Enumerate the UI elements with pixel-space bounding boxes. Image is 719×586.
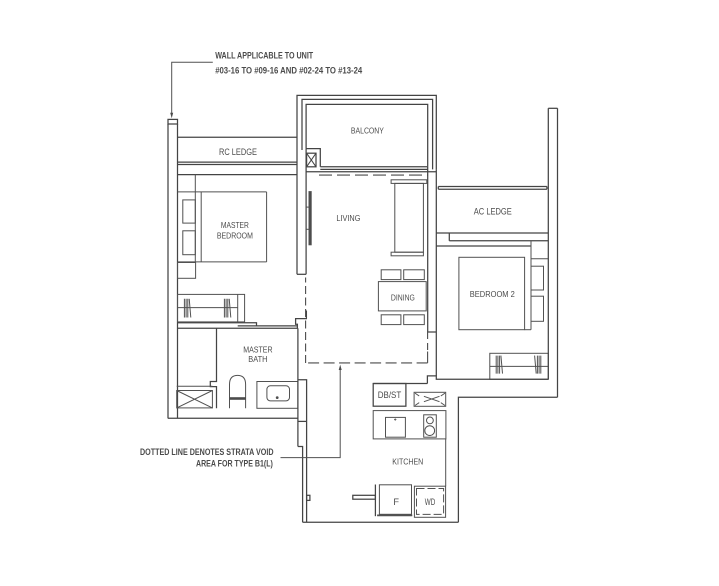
svg-text:BEDROOM: BEDROOM bbox=[217, 232, 253, 241]
svg-text:AC LEDGE: AC LEDGE bbox=[474, 206, 512, 216]
svg-text:AREA FOR TYPE B1(L): AREA FOR TYPE B1(L) bbox=[196, 457, 273, 468]
svg-text:WALL APPLICABLE TO UNIT: WALL APPLICABLE TO UNIT bbox=[215, 50, 313, 61]
svg-text:F: F bbox=[393, 497, 399, 507]
svg-text:LIVING: LIVING bbox=[336, 214, 360, 223]
svg-text:BEDROOM 2: BEDROOM 2 bbox=[470, 289, 515, 299]
svg-text:DINING: DINING bbox=[391, 293, 415, 302]
svg-text:DOTTED LINE DENOTES STRATA VOI: DOTTED LINE DENOTES STRATA VOID bbox=[140, 446, 274, 457]
svg-text:MASTER: MASTER bbox=[243, 345, 273, 354]
svg-text:KITCHEN: KITCHEN bbox=[392, 457, 423, 467]
svg-text:DB/ST: DB/ST bbox=[378, 390, 402, 400]
svg-text:WD: WD bbox=[425, 497, 436, 507]
svg-text:#03-16 TO #09-16 AND #02-24 TO: #03-16 TO #09-16 AND #02-24 TO #13-24 bbox=[215, 64, 363, 75]
svg-text:RC LEDGE: RC LEDGE bbox=[219, 147, 257, 157]
svg-text:BATH: BATH bbox=[248, 355, 267, 364]
svg-text:BALCONY: BALCONY bbox=[351, 127, 384, 136]
svg-text:MASTER: MASTER bbox=[221, 221, 249, 230]
